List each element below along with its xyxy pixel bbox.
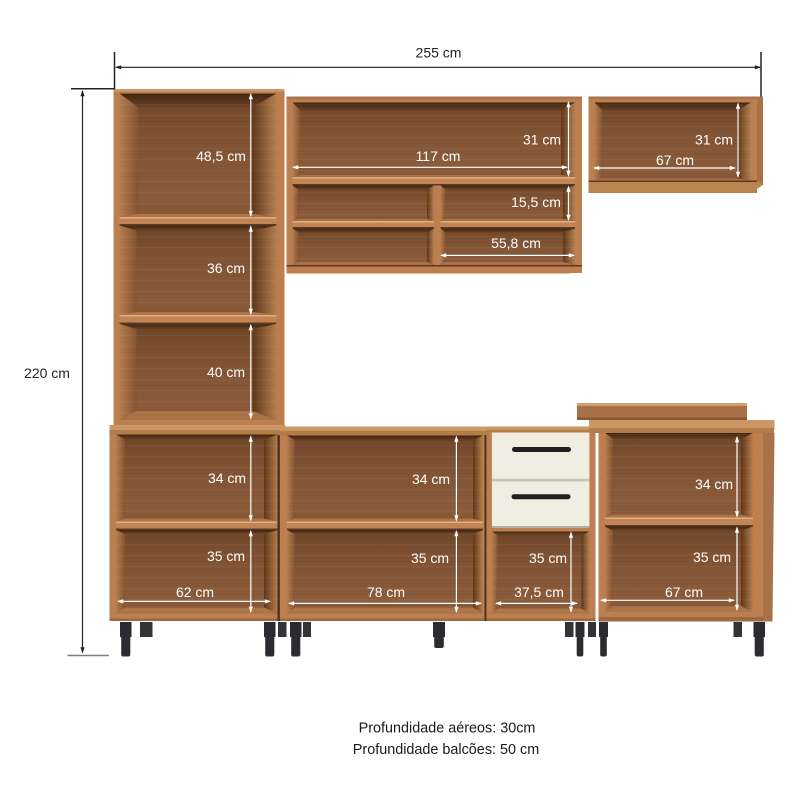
svg-text:35 cm: 35 cm: [207, 548, 245, 564]
svg-text:40 cm: 40 cm: [207, 364, 245, 380]
svg-text:67 cm: 67 cm: [656, 152, 694, 168]
svg-text:15,5 cm: 15,5 cm: [511, 194, 561, 210]
svg-text:78 cm: 78 cm: [367, 584, 405, 600]
svg-text:Profundidade aéreos: 30cm: Profundidade aéreos: 30cm: [359, 721, 536, 737]
svg-text:62 cm: 62 cm: [176, 584, 214, 600]
svg-text:55,8 cm: 55,8 cm: [491, 235, 541, 251]
svg-text:117 cm: 117 cm: [416, 148, 461, 164]
svg-text:36 cm: 36 cm: [207, 260, 245, 276]
svg-text:35 cm: 35 cm: [693, 549, 731, 565]
svg-text:35 cm: 35 cm: [529, 550, 567, 566]
svg-text:Profundidade balcões: 50 cm: Profundidade balcões: 50 cm: [353, 742, 539, 758]
svg-text:220 cm: 220 cm: [24, 365, 70, 381]
svg-text:31 cm: 31 cm: [523, 132, 561, 148]
svg-text:255 cm: 255 cm: [416, 45, 462, 61]
svg-text:31 cm: 31 cm: [695, 132, 733, 148]
svg-text:34 cm: 34 cm: [208, 470, 246, 486]
svg-text:67 cm: 67 cm: [665, 584, 703, 600]
svg-text:34 cm: 34 cm: [412, 471, 450, 487]
svg-text:35 cm: 35 cm: [411, 550, 449, 566]
svg-text:48,5 cm: 48,5 cm: [196, 148, 246, 164]
svg-text:37,5 cm: 37,5 cm: [514, 584, 564, 600]
svg-text:34 cm: 34 cm: [695, 476, 733, 492]
